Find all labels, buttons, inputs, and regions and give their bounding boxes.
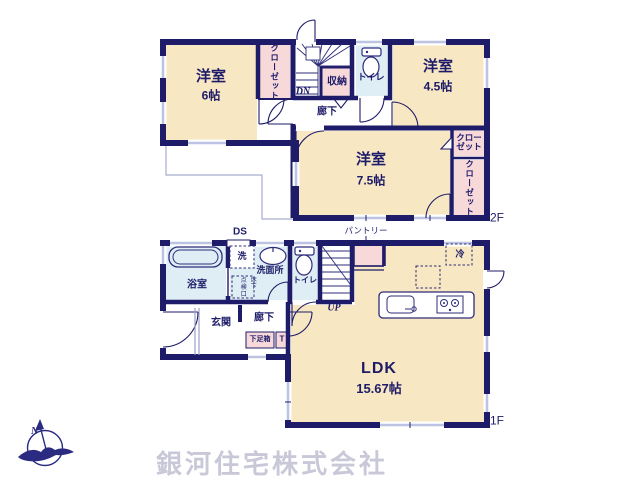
- room6-size: 6帖: [202, 89, 221, 102]
- stairs-dn-label: DN: [296, 87, 310, 98]
- logo-bird-icon: [18, 447, 74, 461]
- company-name: 銀河住宅株式会社: [156, 444, 388, 480]
- storage-label: 収納: [327, 77, 347, 88]
- closet-left-label: クローゼット: [269, 44, 278, 101]
- entrance-label: 玄関: [211, 318, 231, 329]
- front-door: [163, 312, 198, 347]
- compass-n-label: N: [30, 426, 39, 437]
- pantry-label: パントリー: [345, 226, 388, 235]
- stairs-top-door-opening: [296, 38, 316, 46]
- closet-right-upper-label: クロー ゼット: [456, 134, 482, 153]
- underfloor-label: 床下: [249, 276, 256, 290]
- compass-logo: N: [18, 419, 74, 466]
- floor1-label: 1F: [490, 414, 504, 427]
- room75-name: 洋室: [356, 152, 386, 169]
- bath-label: 浴室: [187, 280, 207, 291]
- fridge-label: 冷: [455, 250, 464, 260]
- ds-label: DS: [233, 227, 247, 238]
- room45-name: 洋室: [423, 59, 453, 76]
- t-mark-label: T: [280, 336, 285, 345]
- toilet1f-label: トイレ: [293, 277, 317, 286]
- pantry-fill: [354, 244, 383, 266]
- room45-size: 4.5帖: [424, 80, 453, 93]
- hatch-label: 点検口: [239, 277, 246, 298]
- stove-icon: [437, 296, 463, 313]
- sink-icon: [260, 247, 286, 265]
- entrance-step: [195, 308, 199, 355]
- ldk-fill-lower: [291, 305, 355, 422]
- stairs-up-label: UP: [327, 303, 340, 314]
- closet-right-lower-label: クローゼット: [464, 160, 473, 217]
- hallway2f-label: 廊下: [317, 107, 337, 118]
- toilet2f-door: [360, 98, 384, 122]
- washroom-label: 洗面所: [256, 266, 283, 276]
- toilet2f-label: トイレ: [357, 73, 384, 83]
- room75-size: 7.5帖: [357, 174, 386, 187]
- ldk-size: 15.67帖: [356, 382, 402, 396]
- floorplan-drawing: N: [0, 0, 640, 480]
- toilet1f-icon: [295, 247, 314, 275]
- floorplan-canvas: N 洋室 6帖 クローゼット DN 収納 トイレ 廊下 洋室 4.5帖 クロー …: [0, 0, 640, 480]
- floor2-label: 2F: [490, 211, 504, 224]
- hallway1f-label: 廊下: [254, 313, 274, 324]
- ldk-door-opening: [483, 270, 491, 289]
- shoebox-label: 下足箱: [250, 336, 271, 344]
- kitchen-counter-icon: [379, 292, 474, 318]
- stairs-1f: [322, 246, 350, 293]
- front-door-opening: [159, 311, 167, 348]
- washer-label: 洗: [237, 252, 246, 262]
- lower-floor-outline: [166, 146, 296, 219]
- ldk-name: LDK: [361, 360, 397, 378]
- room6-name: 洋室: [196, 69, 226, 86]
